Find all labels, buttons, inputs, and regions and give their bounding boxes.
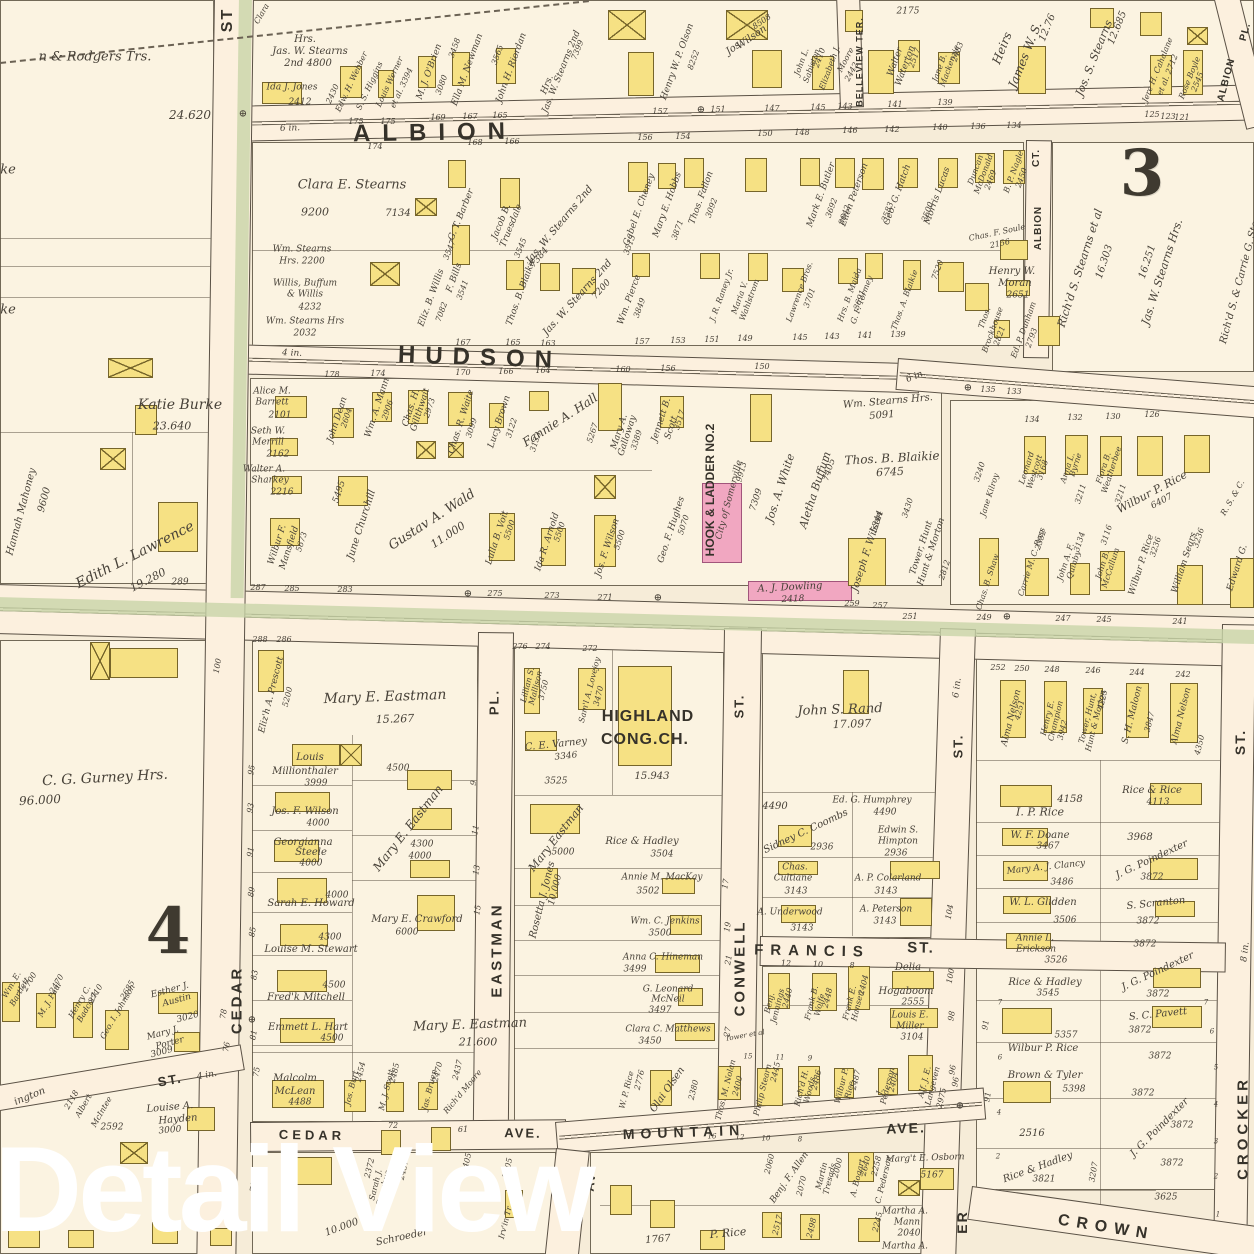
- street-name-label: MOUNTAIN: [623, 1123, 746, 1141]
- survey-cross-icon: ⊕: [654, 593, 662, 604]
- street-name-label: ER: [955, 1210, 969, 1233]
- parcel-label: Fred'k Mitchell: [267, 993, 345, 1003]
- parcel-label: 4500: [323, 982, 346, 991]
- parcel-label: 286: [276, 636, 291, 644]
- parcel-label: Henry W.: [989, 267, 1035, 277]
- parcel-label: 7134: [385, 209, 410, 219]
- building-footprint: [650, 1200, 675, 1228]
- parcel-label: Rice & Hadley: [1008, 978, 1081, 988]
- parcel-label: Katie Burke: [138, 398, 222, 412]
- parcel-label: 153: [670, 337, 685, 345]
- parcel-label: 151: [710, 106, 725, 114]
- parcel-line: [762, 857, 942, 858]
- parcel-label: Miller: [896, 1023, 923, 1032]
- parcel-label: 3821: [1033, 1176, 1056, 1185]
- building-footprint: [108, 358, 153, 378]
- parcel-label: 4488: [289, 1099, 312, 1108]
- parcel-label: Delia: [895, 963, 921, 973]
- street-name-label: ST.: [733, 694, 746, 719]
- parcel-label: 3143: [785, 888, 808, 897]
- parcel-label: Alice M.: [253, 388, 291, 397]
- parcel-label: Anna C. Hineman: [623, 954, 703, 963]
- parcel-label: 271: [597, 594, 612, 602]
- parcel-label: n & Rodgers Trs.: [39, 51, 152, 64]
- parcel-label: 2: [1214, 1174, 1218, 1181]
- parcel-label: 8: [849, 962, 854, 970]
- building-footprint: [1000, 785, 1052, 807]
- parcel-label: 2101: [269, 412, 292, 421]
- parcel-label: 5398: [1063, 1086, 1086, 1095]
- parcel-line: [252, 830, 352, 831]
- parcel-label: 241: [1172, 618, 1187, 626]
- parcel-label: 165: [492, 112, 507, 120]
- parcel-label: 156: [660, 365, 675, 373]
- parcel-label: 2936: [811, 844, 834, 853]
- parcel-label: Ida J. Jones: [267, 84, 318, 93]
- building-footprint: [898, 1180, 920, 1196]
- parcel-line: [976, 1000, 1222, 1001]
- parcel-label: 142: [884, 126, 899, 134]
- parcel-label: 3625: [1155, 1194, 1178, 1203]
- parcel-label: 285: [284, 585, 299, 593]
- parcel-label: 6 in.: [280, 124, 300, 134]
- building-footprint: [540, 263, 560, 291]
- parcel-label: 2162: [267, 451, 290, 460]
- parcel-label: 11: [776, 1055, 785, 1062]
- parcel-label: 2175: [897, 8, 920, 17]
- survey-cross-icon: ⊕: [464, 589, 472, 600]
- street-name-label: CONWELL: [733, 920, 748, 1017]
- parcel-label: G. Leonard: [643, 986, 694, 995]
- parcel-label: 17.097: [833, 718, 872, 730]
- parcel-label: 154: [675, 133, 690, 141]
- parcel-label: 274: [535, 643, 550, 651]
- parcel-label: Clara E. Stearns: [298, 179, 407, 192]
- parcel-label: 141: [887, 101, 902, 109]
- parcel-label: 259: [844, 600, 859, 608]
- parcel-label: 139: [937, 99, 952, 107]
- parcel-label: 3497: [649, 1007, 672, 1016]
- parcel-label: Chas.: [782, 864, 808, 873]
- parcel-label: 145: [792, 334, 807, 342]
- parcel-label: 2418: [781, 595, 804, 605]
- parcel-label: Jas. W. Stearns: [272, 47, 347, 57]
- parcel-label: 157: [652, 108, 667, 116]
- street-name-label: ST.: [907, 940, 935, 955]
- parcel-label: Cultiane: [774, 875, 813, 884]
- parcel-label: 3450: [639, 1038, 662, 1047]
- parcel-label: 4500: [321, 1035, 344, 1044]
- parcel-label: 3872: [1149, 1053, 1172, 1062]
- parcel-label: 170: [455, 369, 470, 377]
- parcel-label: Malcolm: [273, 1074, 317, 1084]
- parcel-label: 4300: [411, 841, 434, 850]
- building-footprint: [1002, 1008, 1052, 1034]
- parcel-label: 148: [794, 129, 809, 137]
- parcel-line: [352, 835, 478, 836]
- parcel-line: [252, 470, 652, 471]
- map-canvas: Detail View ⊕⊕⊕⊕⊕⊕⊕⊕ALBIONHUDSONFRANCISS…: [0, 0, 1254, 1254]
- parcel-label: Louis E.: [892, 1012, 929, 1021]
- parcel-label: I. P. Rice: [1016, 807, 1064, 818]
- building-footprint: [90, 642, 110, 680]
- parcel-label: 143: [824, 333, 839, 341]
- parcel-label: 2555: [902, 999, 925, 1008]
- parcel-label: ke: [0, 304, 16, 317]
- parcel-label: 8: [798, 1137, 802, 1144]
- parcel-label: 12: [736, 1135, 745, 1142]
- parcel-label: A. P. Colarland: [855, 875, 922, 884]
- parcel-label: Wm. C. Jenkins: [630, 918, 699, 927]
- parcel-label: Ed. G. Humphrey: [832, 797, 911, 806]
- parcel-label: 4490: [874, 809, 897, 818]
- parcel-label: 250: [1014, 665, 1029, 673]
- parcel-label: 252: [990, 664, 1005, 672]
- parcel-label: Himpton: [878, 838, 918, 847]
- parcel-label: 247: [1055, 615, 1070, 623]
- parcel-label: 16: [708, 1134, 717, 1141]
- parcel-label: 150: [754, 363, 769, 371]
- parcel-line: [852, 792, 853, 936]
- parcel-label: Annie L.: [1016, 935, 1054, 944]
- parcel-line: [976, 760, 1222, 761]
- building-footprint: [417, 895, 455, 931]
- parcel-line: [0, 297, 214, 298]
- parcel-label: 132: [1067, 414, 1082, 422]
- parcel-label: Mann: [894, 1219, 920, 1228]
- parcel-label: 166: [498, 368, 513, 376]
- parcel-label: Wilbur P. Rice: [1008, 1044, 1079, 1054]
- parcel-label: Walter A.: [243, 466, 285, 475]
- street-name-label: FRANCIS: [754, 942, 870, 959]
- parcel-label: 4300: [319, 934, 342, 943]
- parcel-label: 178: [324, 371, 339, 379]
- parcel-label: 21.600: [459, 1037, 498, 1048]
- parcel-label: Sharkey: [251, 477, 289, 486]
- parcel-label: 15.267: [376, 713, 415, 725]
- building-footprint: [748, 253, 768, 281]
- parcel-label: 96.000: [19, 793, 62, 807]
- parcel-label: 4113: [1147, 799, 1170, 808]
- parcel-label: Barrett: [255, 399, 288, 408]
- parcel-label: 7: [998, 1000, 1002, 1007]
- parcel-label: 2nd 4800: [284, 59, 332, 69]
- parcel-label: 4: [1214, 1102, 1218, 1109]
- parcel-label: 123: [1160, 113, 1175, 121]
- parcel-label: Wm. Stearns: [273, 246, 332, 255]
- parcel-label: 160: [615, 366, 630, 374]
- survey-cross-icon: ⊕: [964, 383, 972, 394]
- parcel-line: [976, 922, 1222, 923]
- parcel-label: 245: [1096, 616, 1111, 624]
- parcel-label: 15.943: [635, 772, 670, 782]
- parcel-label: 3872: [1132, 1090, 1155, 1099]
- parcel-label: 139: [890, 331, 905, 339]
- parcel-label: 9: [808, 1056, 812, 1063]
- parcel-label: 134: [1006, 122, 1021, 130]
- street-name-label: ST.: [1233, 729, 1247, 755]
- parcel-line: [252, 1045, 352, 1046]
- parcel-label: 6745: [876, 466, 905, 478]
- survey-cross-icon: ⊕: [697, 105, 705, 116]
- parcel-line: [252, 955, 352, 956]
- parcel-label: 6: [998, 1055, 1002, 1062]
- parcel-label: 169: [430, 114, 445, 122]
- parcel-line: [514, 1048, 724, 1049]
- parcel-label: 167: [455, 339, 470, 347]
- parcel-label: 4 in.: [282, 349, 302, 359]
- parcel-label: 166: [504, 138, 519, 146]
- parcel-label: 130: [1105, 413, 1120, 421]
- parcel-line: [252, 785, 352, 786]
- parcel-label: 272: [582, 645, 597, 653]
- parcel-label: 273: [544, 592, 559, 600]
- parcel-label: Martha A.: [882, 1208, 928, 1217]
- parcel-label: 143: [837, 103, 852, 111]
- parcel-label: Edwin S.: [878, 827, 918, 836]
- building-footprint: [1187, 27, 1208, 45]
- parcel-label: 275: [487, 590, 502, 598]
- parcel-line: [514, 1012, 724, 1013]
- parcel-label: Mary E. Eastman: [413, 1017, 527, 1034]
- district-number-label: 4: [146, 900, 191, 964]
- building-footprint: [415, 198, 437, 216]
- parcel-label: 149: [737, 335, 752, 343]
- parcel-label: Erickson: [1016, 946, 1056, 955]
- building-footprint: [100, 448, 126, 470]
- parcel-label: 251: [902, 613, 917, 621]
- parcel-label: 163: [540, 340, 555, 348]
- parcel-label: Wm. Stearns Hrs: [266, 318, 344, 327]
- building-footprint: [750, 394, 772, 442]
- parcel-label: 2936: [885, 850, 908, 859]
- building-footprint: [410, 860, 450, 878]
- parcel-label: Martha A.: [882, 1243, 928, 1252]
- parcel-label: 167: [462, 113, 477, 121]
- parcel-line: [514, 795, 724, 796]
- parcel-label: Seth W.: [251, 428, 285, 437]
- parcel-line: [0, 266, 214, 267]
- survey-cross-icon: ⊕: [248, 1015, 256, 1026]
- parcel-line: [252, 912, 352, 913]
- parcel-label: 165: [505, 339, 520, 347]
- parcel-label: McNeil: [651, 996, 684, 1005]
- parcel-label: 157: [634, 338, 649, 346]
- parcel-label: Willis, Buffum: [273, 280, 337, 289]
- survey-cross-icon: ⊕: [1003, 612, 1011, 623]
- parcel-label: 3872: [1161, 1160, 1184, 1169]
- parcel-label: 3502: [637, 888, 660, 897]
- parcel-label: 6000: [396, 929, 419, 938]
- parcel-label: 5: [1214, 1065, 1218, 1072]
- parcel-line: [352, 880, 478, 881]
- parcel-label: 10: [813, 961, 823, 969]
- parcel-label: 140: [932, 124, 947, 132]
- parcel-label: 4000: [307, 820, 330, 829]
- parcel-line: [976, 855, 1222, 856]
- parcel-label: 3968: [1127, 833, 1152, 843]
- parcel-label: 3143: [791, 925, 814, 934]
- parcel-label: Hrs. 2200: [279, 258, 324, 267]
- parcel-label: 3872: [1147, 991, 1170, 1000]
- parcel-label: Louise M. Stewart: [264, 945, 357, 955]
- parcel-label: 174: [367, 143, 382, 151]
- street-name-label: PL.: [488, 689, 501, 715]
- parcel-label: 23.640: [153, 421, 192, 432]
- parcel-label: 289: [171, 579, 188, 588]
- parcel-label: 3467: [1037, 843, 1060, 852]
- parcel-label: 3999: [305, 780, 328, 789]
- parcel-label: 287: [250, 584, 265, 592]
- parcel-label: 145: [810, 104, 825, 112]
- parcel-label: 4490: [762, 802, 787, 812]
- parcel-label: 2216: [271, 489, 294, 498]
- parcel-label: John S. Rand: [797, 702, 883, 718]
- parcel-label: 2651: [1007, 292, 1030, 301]
- parcel-label: 6: [1210, 1029, 1214, 1036]
- parcel-label: 133: [1006, 388, 1021, 396]
- parcel-label: 3525: [545, 778, 568, 787]
- parcel-label: Mary E. Crawford: [371, 915, 462, 925]
- parcel-label: 125: [1144, 111, 1159, 119]
- parcel-label: 2516: [1019, 1129, 1044, 1139]
- parcel-label: 175: [348, 118, 363, 126]
- parcel-label: 121: [1174, 114, 1189, 122]
- building-footprint: [110, 648, 178, 678]
- parcel-label: 5357: [1055, 1032, 1078, 1041]
- parcel-label: Louis: [296, 753, 323, 763]
- parcel-line: [252, 872, 352, 873]
- building-footprint: [1137, 436, 1163, 476]
- survey-cross-icon: ⊕: [239, 109, 247, 120]
- parcel-line: [1100, 760, 1101, 1210]
- building-footprint: [277, 970, 327, 992]
- parcel-label: 168: [467, 139, 482, 147]
- parcel-label: 135: [980, 386, 995, 394]
- building-footprint: [594, 475, 616, 499]
- parcel-label: 1: [1216, 1212, 1220, 1219]
- parcel-label: 3872: [1141, 874, 1164, 883]
- parcel-label: 3499: [624, 966, 647, 975]
- street-name-label: AVE.: [886, 1120, 926, 1135]
- parcel-label: 2: [996, 1154, 1000, 1161]
- street-name-label: ALBION: [1034, 206, 1044, 250]
- street-name-label: CT.: [1032, 149, 1042, 167]
- parcel-label: 175: [380, 118, 395, 126]
- parcel-label: 4500: [387, 765, 410, 774]
- parcel-label: W. F. Doane: [1011, 831, 1070, 841]
- street-name-label: BELLEVIEW TER.: [856, 17, 865, 107]
- building-footprint: [1184, 435, 1210, 473]
- parcel-label: 4158: [1057, 795, 1082, 805]
- parcel-label: 126: [1144, 411, 1159, 419]
- building-footprint: [448, 160, 466, 188]
- parcel-label: W. L. Glidden: [1009, 898, 1076, 908]
- parcel-line: [514, 940, 724, 941]
- street-name-label: ST: [220, 8, 236, 32]
- parcel-label: 3143: [875, 888, 898, 897]
- survey-cross-icon: ⊕: [956, 1101, 964, 1112]
- street-name-label: HIGHLAND: [602, 709, 694, 725]
- building-footprint: [1003, 1081, 1051, 1103]
- parcel-label: 3872: [1137, 918, 1160, 927]
- parcel-label: 3500: [649, 930, 672, 939]
- street-name-label: EASTMAN: [490, 902, 505, 997]
- parcel-label: Rice & Hadley: [605, 837, 678, 847]
- parcel-label: 10: [762, 1136, 771, 1143]
- parcel-label: 3545: [1037, 990, 1060, 999]
- parcel-label: 164: [535, 367, 550, 375]
- parcel-label: Clara C. Matthews: [625, 1026, 710, 1035]
- parcel-label: 3486: [1051, 879, 1074, 888]
- parcel-label: 3504: [651, 851, 674, 860]
- building-footprint: [700, 253, 720, 279]
- building-footprint: [340, 744, 362, 766]
- parcel-label: 5000: [552, 849, 575, 858]
- parcel-label: 2040: [898, 1230, 921, 1239]
- parcel-line: [976, 888, 1222, 889]
- parcel-label: Millionthaler: [272, 767, 338, 777]
- parcel-label: 248: [1044, 666, 1059, 674]
- parcel-line: [514, 975, 724, 976]
- parcel-label: 4: [997, 1110, 1001, 1117]
- parcel-label: Brown & Tyler: [1008, 1071, 1083, 1081]
- parcel-label: Hogaboom: [878, 987, 933, 997]
- parcel-label: Annie M. MacKay: [622, 874, 703, 883]
- parcel-label: 134: [1024, 416, 1039, 424]
- parcel-label: 7: [1204, 1000, 1208, 1007]
- parcel-label: 151: [704, 336, 719, 344]
- parcel-label: 3143: [874, 918, 897, 927]
- parcel-label: McLean: [275, 1087, 316, 1097]
- parcel-label: 242: [1175, 671, 1190, 679]
- parcel-label: 276: [512, 643, 527, 651]
- parcel-label: 3104: [901, 1034, 924, 1043]
- building-footprint: [800, 158, 820, 186]
- parcel-label: 3872: [1171, 1122, 1194, 1131]
- parcel-label: 4000: [409, 853, 432, 862]
- parcel-label: A. Peterson: [860, 906, 912, 915]
- parcel-line: [976, 822, 1222, 823]
- parcel-label: 24.620: [169, 109, 211, 121]
- street-name-label: CROCKER: [1236, 1076, 1251, 1180]
- parcel-label: Sarah E. Howard: [267, 899, 354, 909]
- parcel-label: 244: [1129, 669, 1144, 677]
- parcel-label: 9200: [301, 207, 329, 218]
- building-footprint: [416, 441, 436, 459]
- parcel-line: [252, 250, 1032, 251]
- parcel-label: 3872: [1129, 1027, 1152, 1036]
- parcel-label: 5167: [921, 1172, 944, 1181]
- parcel-label: Rice & Rice: [1122, 786, 1182, 796]
- parcel-label: 2412: [289, 99, 312, 108]
- parcel-label: 249: [976, 614, 991, 622]
- building-footprint: [608, 10, 646, 40]
- parcel-label: Mary E. Eastman: [323, 688, 446, 706]
- parcel-label: Hrs.: [294, 35, 316, 45]
- parcel-label: Moran: [998, 279, 1031, 289]
- watermark-text: Detail View: [0, 1128, 592, 1250]
- building-footprint: [370, 262, 400, 286]
- parcel-label: 156: [637, 134, 652, 142]
- parcel-label: 15: [744, 1054, 753, 1061]
- parcel-label: 4000: [300, 860, 323, 869]
- parcel-line: [976, 1148, 1222, 1149]
- parcel-label: 12: [781, 960, 791, 968]
- parcel-label: Merrill: [252, 439, 284, 448]
- parcel-label: 146: [842, 127, 857, 135]
- parcel-label: 141: [857, 332, 872, 340]
